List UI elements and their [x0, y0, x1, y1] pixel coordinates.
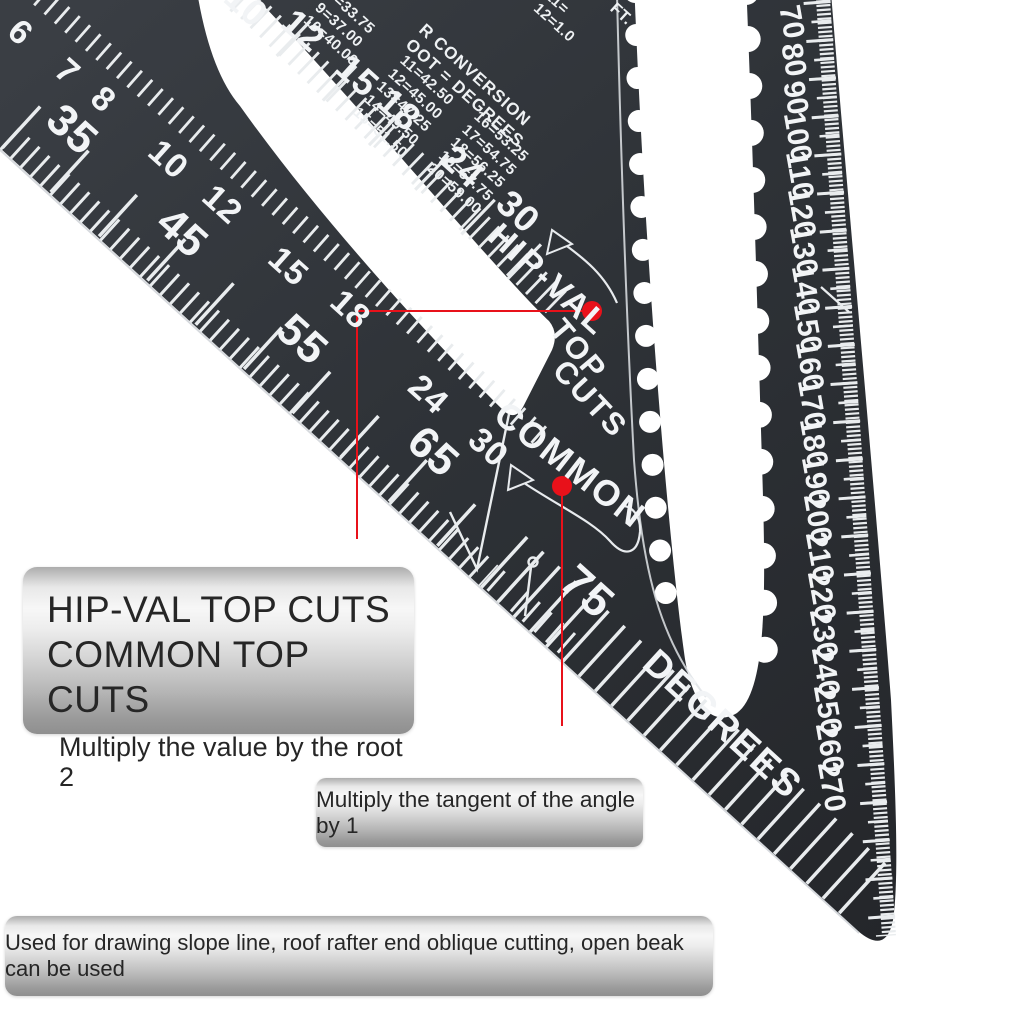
callout-line: HIP-VAL TOP CUTS — [47, 587, 414, 632]
callout-usage: Used for drawing slope line, roof rafter… — [5, 916, 713, 996]
product-image: 6 7 8 10 12 15 18 24 30 35 45 55 65 75 1… — [0, 0, 1010, 1010]
mm-scale-number: 70 — [771, 3, 810, 42]
callout-line: Used for drawing slope line, roof rafter… — [5, 930, 713, 982]
callout-line: COMMON TOP CUTS — [47, 632, 414, 722]
mm-scale-number: 80 — [773, 41, 812, 80]
callout-line: Multiply the tangent of the angle by 1 — [316, 787, 643, 839]
callout-tangent: Multiply the tangent of the angle by 1 — [316, 778, 643, 847]
callout-top-cuts: HIP-VAL TOP CUTS COMMON TOP CUTS Multipl… — [23, 567, 414, 734]
